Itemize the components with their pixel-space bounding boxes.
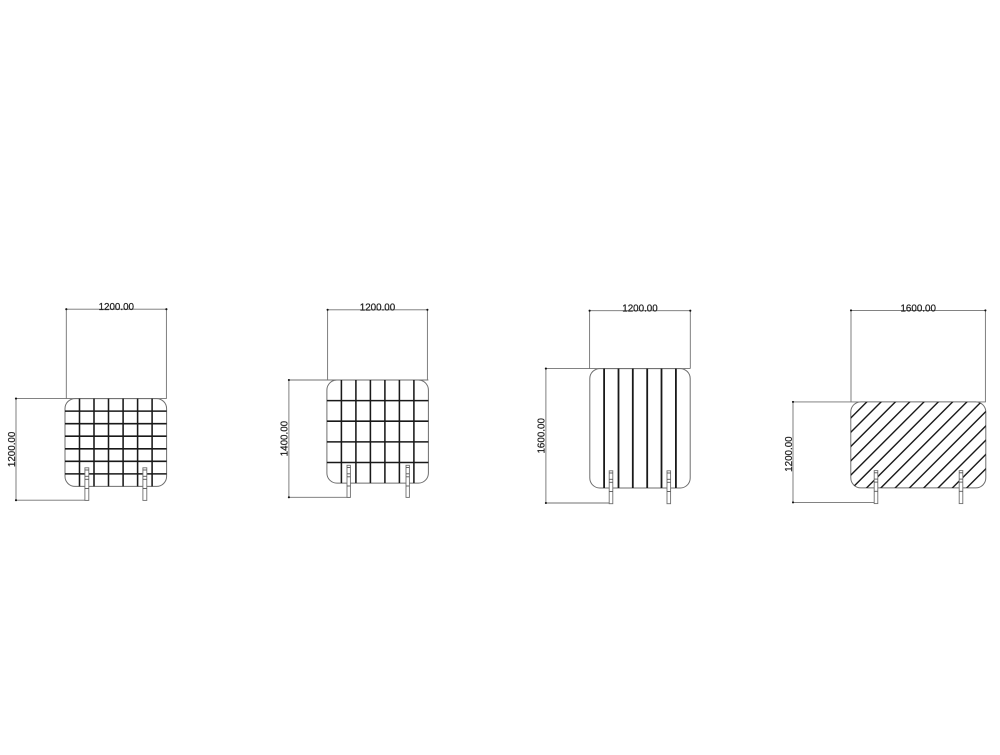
svg-text:1200.00: 1200.00 (99, 302, 135, 313)
svg-text:1600.00: 1600.00 (537, 418, 548, 454)
svg-text:1200.00: 1200.00 (622, 304, 658, 315)
svg-text:1200.00: 1200.00 (360, 303, 396, 314)
svg-text:1200.00: 1200.00 (7, 431, 18, 467)
svg-text:1200.00: 1200.00 (784, 436, 795, 472)
svg-text:1400.00: 1400.00 (280, 420, 291, 456)
svg-text:1600.00: 1600.00 (900, 303, 936, 314)
